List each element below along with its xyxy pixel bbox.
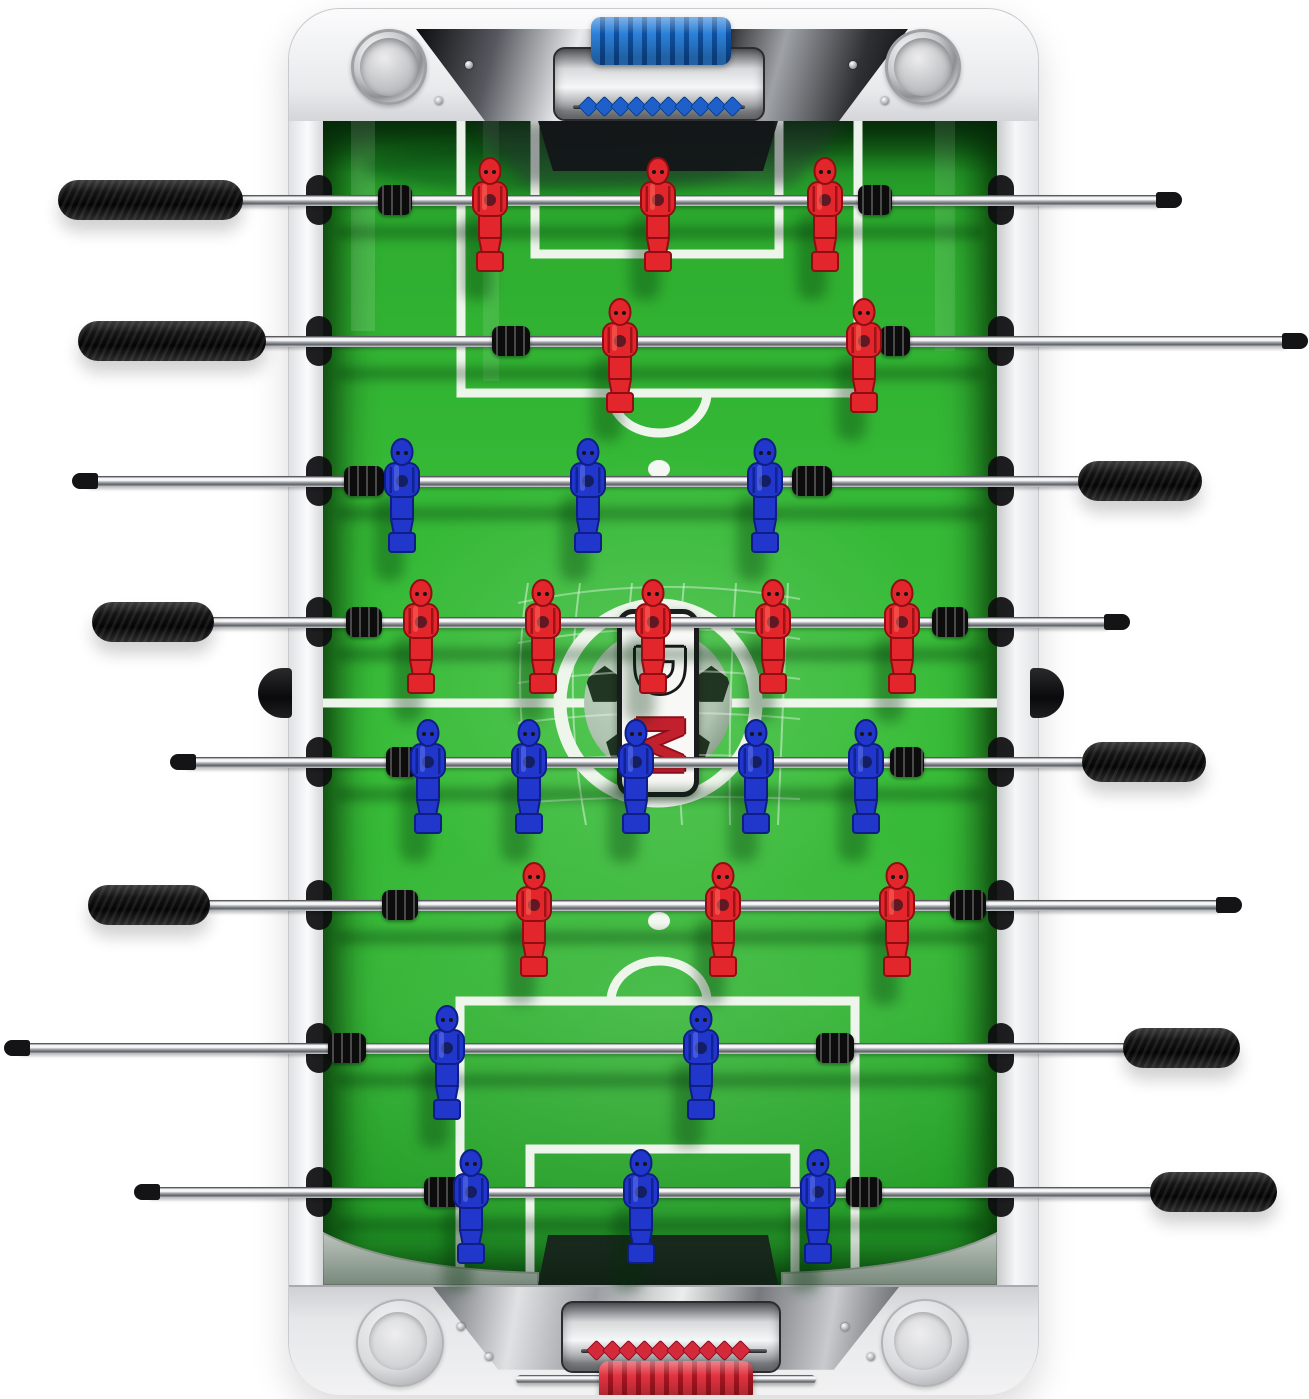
player-figure-blue <box>613 718 659 834</box>
rod-handle-left[interactable] <box>88 885 210 925</box>
player-figure-blue <box>448 1148 494 1264</box>
player-figure-blue <box>733 718 779 834</box>
cup-holder-bottom-left <box>356 1299 444 1387</box>
rod-end-cap <box>1216 897 1242 913</box>
ball-serve-knob-left[interactable] <box>258 668 292 718</box>
player-figure-red <box>750 578 796 694</box>
player-rod[interactable] <box>18 1043 1128 1054</box>
rod-bumper <box>492 326 530 356</box>
player-figure-blue <box>506 718 552 834</box>
rod-end-cap <box>72 473 98 489</box>
score-grip-red[interactable] <box>599 1361 753 1395</box>
cup-holder-inner <box>369 1312 427 1370</box>
screw-icon <box>849 61 857 69</box>
player-figure-blue <box>795 1148 841 1264</box>
rod-bumper <box>816 1033 854 1063</box>
rod-bumper <box>950 890 986 920</box>
screw-icon <box>465 61 473 69</box>
table-head-end <box>289 9 1038 123</box>
screw-icon <box>841 1323 849 1331</box>
screw-icon <box>881 97 889 105</box>
rod-bumper <box>932 607 968 637</box>
cup-holder-bottom-right <box>881 1299 969 1387</box>
rod-handle-left[interactable] <box>58 180 243 220</box>
player-figure-red <box>630 578 676 694</box>
player-figure-red <box>511 861 557 977</box>
rod-handle-right[interactable] <box>1123 1028 1240 1068</box>
player-figure-red <box>700 861 746 977</box>
rod-end-cap <box>170 754 196 770</box>
rod-bumper <box>858 185 892 215</box>
player-figure-blue <box>405 718 451 834</box>
rod-end-cap <box>1156 192 1182 208</box>
player-figure-red <box>879 578 925 694</box>
rod-shadow <box>336 507 984 520</box>
rod-bumper <box>792 466 832 496</box>
rod-handle-left[interactable] <box>92 602 214 642</box>
rod-handle-left[interactable] <box>78 321 266 361</box>
rod-bumper <box>344 466 384 496</box>
rod-bumper <box>382 890 418 920</box>
rod-bumper <box>890 747 924 777</box>
rod-bumper <box>846 1177 882 1207</box>
rod-end-cap <box>134 1184 160 1200</box>
screw-icon <box>867 1353 875 1361</box>
player-figure-red <box>597 297 643 413</box>
screw-icon <box>485 1353 493 1361</box>
player-figure-blue <box>379 437 425 553</box>
player-figure-red <box>635 156 681 272</box>
rod-bumper <box>378 185 412 215</box>
rod-end-cap <box>1282 333 1308 349</box>
player-figure-red <box>841 297 887 413</box>
player-figure-red <box>520 578 566 694</box>
ball-serve-knob-right[interactable] <box>1030 668 1064 718</box>
screw-icon <box>435 97 443 105</box>
player-figure-red <box>467 156 513 272</box>
rod-bumper <box>328 1033 366 1063</box>
player-figure-red <box>802 156 848 272</box>
player-figure-blue <box>678 1004 724 1120</box>
screw-icon <box>457 1323 465 1331</box>
cup-holder-inner <box>894 1312 952 1370</box>
player-figure-red <box>874 861 920 977</box>
cup-holder-top-left <box>351 29 427 105</box>
side-wall-left <box>289 121 323 1285</box>
rod-handle-right[interactable] <box>1150 1172 1277 1212</box>
player-figure-blue <box>742 437 788 553</box>
rod-handle-right[interactable] <box>1078 461 1202 501</box>
player-figure-red <box>398 578 444 694</box>
foosball-table-scene: D M <box>0 0 1309 1399</box>
rod-end-cap <box>4 1040 30 1056</box>
player-figure-blue <box>843 718 889 834</box>
cup-holder-top-right <box>885 29 961 105</box>
cup-holder-inner <box>894 38 952 96</box>
player-figure-blue <box>618 1148 664 1264</box>
rod-handle-right[interactable] <box>1082 742 1206 782</box>
player-figure-blue <box>565 437 611 553</box>
rod-end-cap <box>1104 614 1130 630</box>
table-foot-end <box>289 1285 1038 1395</box>
player-rod[interactable] <box>252 336 1288 347</box>
cup-holder-inner <box>360 38 418 96</box>
player-rod[interactable] <box>228 195 1162 206</box>
score-grip-blue[interactable] <box>591 17 731 65</box>
player-figure-blue <box>424 1004 470 1120</box>
rod-bumper <box>346 607 382 637</box>
